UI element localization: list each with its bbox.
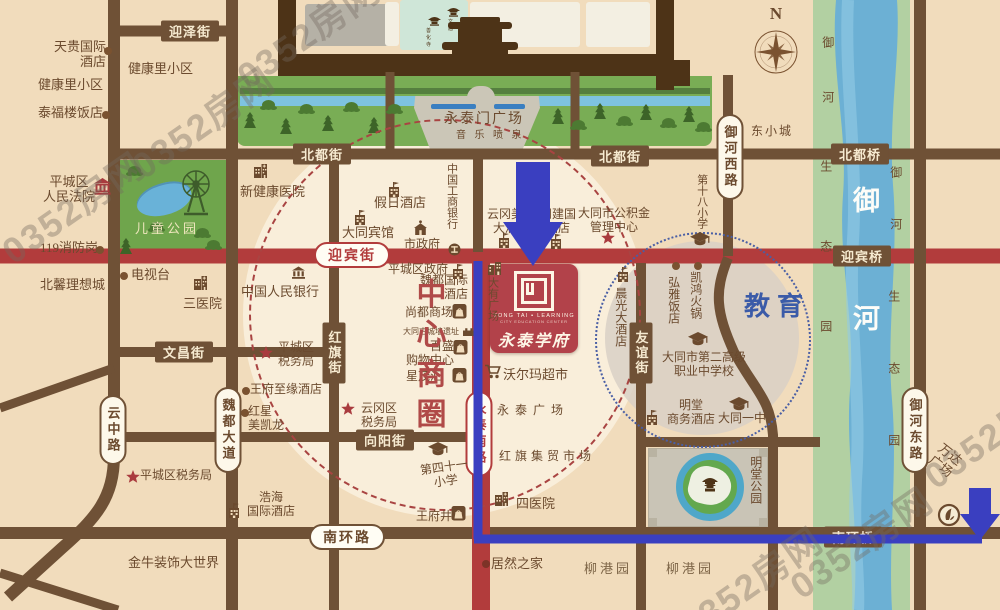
location-map: 善化寺 文庙 永泰门广场 音 乐 喷 泉 — [0, 0, 1000, 610]
wanda-arrow-icon — [960, 488, 1000, 540]
project-arrow-icon — [503, 162, 563, 266]
